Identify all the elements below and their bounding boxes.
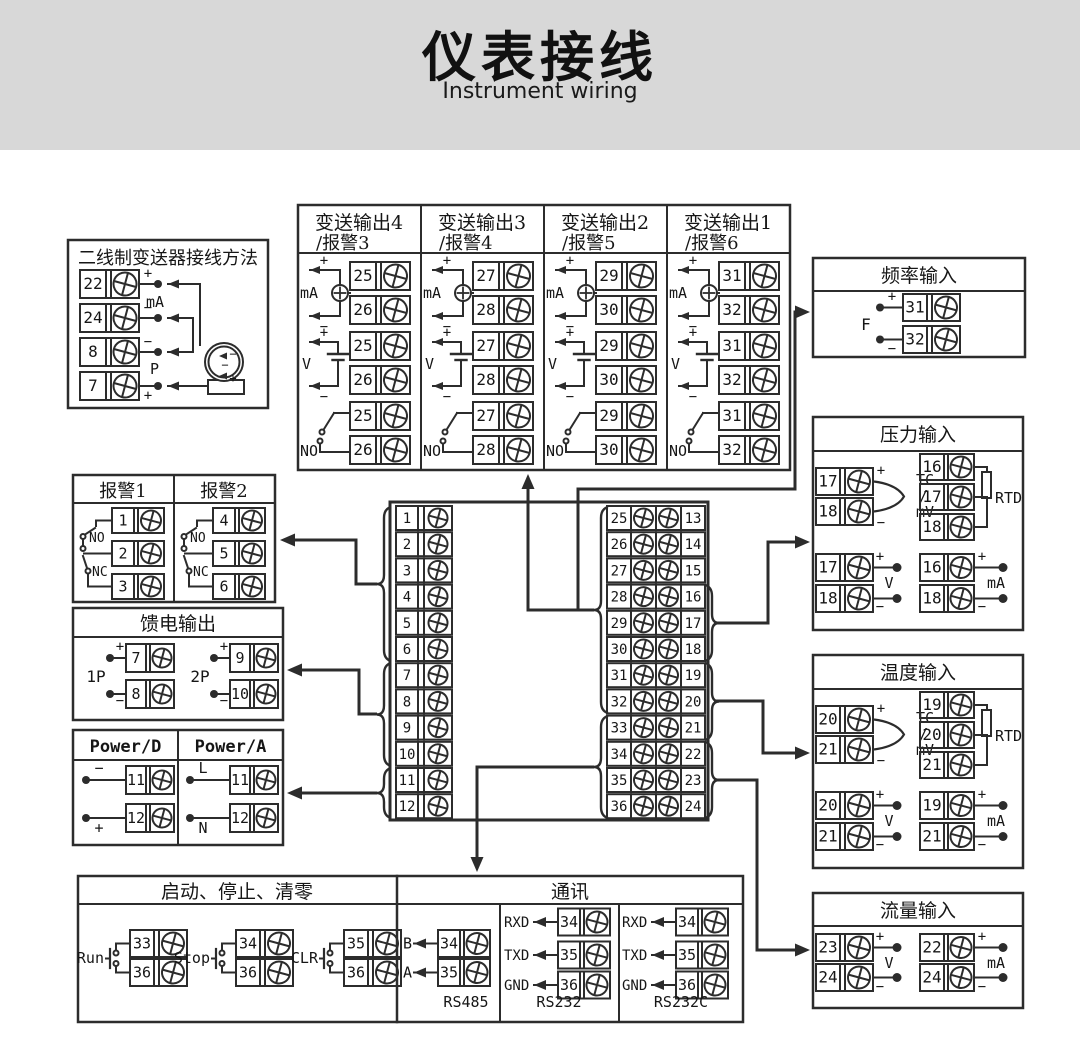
terminal-number: 32 xyxy=(722,440,741,459)
screw-terminal-icon xyxy=(632,742,655,765)
screw-terminal-icon xyxy=(933,326,960,353)
terminal-31: 31 xyxy=(719,262,779,290)
terminal-32: 32 xyxy=(903,326,960,353)
terminal-number: 16 xyxy=(922,457,941,476)
label: NC xyxy=(193,565,209,580)
terminal-35: 35 xyxy=(344,930,401,957)
terminal-5: 5 xyxy=(213,541,265,566)
screw-terminal-icon xyxy=(750,366,778,394)
connection-dot xyxy=(893,832,902,841)
terminal-number: 8 xyxy=(88,342,98,361)
terminal-number: 30 xyxy=(611,642,628,658)
label: + xyxy=(877,701,885,717)
screw-terminal-icon xyxy=(150,806,173,829)
power-column: Power/A1112LN xyxy=(186,737,278,837)
terminal-number: 36 xyxy=(133,964,151,982)
terminal-number: 29 xyxy=(599,406,618,425)
terminal-4: 4 xyxy=(396,585,452,609)
label: NO xyxy=(89,531,105,546)
pushbutton-group: 3536CLR xyxy=(291,930,401,986)
box-title: 温度输入 xyxy=(880,662,956,684)
screw-terminal-icon xyxy=(657,716,680,739)
terminal-pair-25-13: 2513 xyxy=(607,506,705,530)
box-title: 二线制变送器接线方法 xyxy=(78,248,258,269)
comm-section-RS485: 34B35ARS485 xyxy=(403,930,490,1011)
screw-terminal-icon xyxy=(426,611,449,634)
terminal-31: 31 xyxy=(719,402,779,430)
terminal-number: 32 xyxy=(611,694,628,710)
terminal-number: 6 xyxy=(219,578,228,596)
terminal-24: 24 xyxy=(816,964,873,991)
label: + xyxy=(443,325,451,341)
terminal-pair-35-23: 3523 xyxy=(607,768,705,792)
terminal-number: 30 xyxy=(599,370,618,389)
label: − xyxy=(877,515,885,531)
screw-terminal-icon xyxy=(632,716,655,739)
resistor-icon xyxy=(982,710,991,736)
box-pressure-input: 压力输入1718+−TC/mV161718RTD1718+V−1618+mA− xyxy=(813,417,1023,630)
screw-terminal-icon xyxy=(381,402,409,430)
terminal-number: 18 xyxy=(818,589,837,608)
comm-section-RS232: 34RXD35TXD36GNDRS232 xyxy=(504,909,610,1012)
terminal-20: 20 xyxy=(816,792,873,819)
screw-terminal-icon xyxy=(150,682,173,705)
terminal-number: 25 xyxy=(353,336,372,355)
terminal-11: 11 xyxy=(396,768,452,792)
terminal-pair-34-22: 3422 xyxy=(607,742,705,766)
arrowhead-icon xyxy=(522,474,535,489)
screw-terminal-icon xyxy=(657,768,680,791)
screw-terminal-icon xyxy=(846,585,873,612)
connection-dot xyxy=(154,280,162,288)
terminal-2: 2 xyxy=(112,541,164,566)
terminal-number: 24 xyxy=(685,799,702,815)
connection-dot xyxy=(999,943,1008,952)
terminal-19: 19 xyxy=(920,792,974,819)
box-title: Power/D xyxy=(90,737,162,757)
label: − xyxy=(876,837,884,853)
terminal-22: 22 xyxy=(920,934,974,961)
screw-terminal-icon xyxy=(139,508,163,532)
screw-terminal-icon xyxy=(426,506,449,529)
screw-terminal-icon xyxy=(464,960,490,986)
terminal-number: 18 xyxy=(922,589,941,608)
label: NO xyxy=(423,442,441,460)
box-flow-input: 流量输入2324+V−2224+mA− xyxy=(813,893,1023,1008)
terminal-31: 31 xyxy=(903,294,960,321)
screw-terminal-icon xyxy=(381,262,409,290)
screw-terminal-icon xyxy=(464,931,490,957)
label: + xyxy=(144,388,152,404)
terminal-number: 1 xyxy=(403,511,411,527)
terminal-21: 21 xyxy=(816,736,873,763)
label: − xyxy=(116,693,124,709)
terminal-number: 13 xyxy=(685,511,702,527)
label: RXD xyxy=(622,915,647,931)
terminal-7: 7 xyxy=(126,644,174,672)
terminal-number: 2 xyxy=(118,545,127,563)
box-title: /报警4 xyxy=(439,233,493,254)
terminal-number: 14 xyxy=(685,537,702,553)
screw-terminal-icon xyxy=(627,436,655,464)
screw-terminal-icon xyxy=(254,682,277,705)
terminal-number: 4 xyxy=(219,512,228,530)
terminal-number: 18 xyxy=(685,642,702,658)
terminal-number: 17 xyxy=(685,616,702,632)
terminal-number: 12 xyxy=(127,809,145,827)
terminal-4: 4 xyxy=(213,508,265,533)
terminal-29: 29 xyxy=(596,332,656,360)
terminal-number: 31 xyxy=(722,336,741,355)
terminal-number: 17 xyxy=(818,558,837,577)
arrowhead-icon xyxy=(795,944,810,957)
arrowhead-icon xyxy=(168,348,179,357)
terminal-number: 34 xyxy=(678,913,696,931)
terminal-number: 11 xyxy=(127,771,145,789)
screw-terminal-icon xyxy=(657,585,680,608)
label: + xyxy=(220,639,228,655)
terminal-number: 26 xyxy=(353,300,372,319)
arrowhead-icon xyxy=(679,382,689,390)
arrowhead-icon xyxy=(556,312,566,320)
terminal-number: 21 xyxy=(818,740,837,759)
current-source-icon xyxy=(701,285,717,301)
label: mA xyxy=(987,812,1005,830)
screw-terminal-icon xyxy=(584,972,610,998)
arrowhead-icon xyxy=(433,312,443,320)
terminal-number: 26 xyxy=(611,537,628,553)
screw-terminal-icon xyxy=(254,768,277,791)
terminal-number: 10 xyxy=(231,685,249,703)
screw-terminal-icon xyxy=(504,332,532,360)
label: V xyxy=(884,954,893,972)
terminal-number: 17 xyxy=(922,487,941,506)
terminal-number: 25 xyxy=(353,406,372,425)
terminal-number: 20 xyxy=(818,796,837,815)
terminal-number: 33 xyxy=(133,935,151,953)
screw-terminal-icon xyxy=(702,942,728,968)
connection-dot xyxy=(999,832,1008,841)
screw-terminal-icon xyxy=(426,795,449,818)
terminal-number: 16 xyxy=(922,558,941,577)
screw-terminal-icon xyxy=(846,706,873,733)
screw-terminal-icon xyxy=(657,611,680,634)
screw-terminal-icon xyxy=(948,692,974,718)
screw-terminal-icon xyxy=(948,965,974,991)
terminal-number: 35 xyxy=(440,964,458,982)
terminal-number: 28 xyxy=(476,300,495,319)
screw-terminal-icon xyxy=(948,935,974,961)
box-frequency-input: 频率输入3132+−F xyxy=(813,258,1025,357)
box-title: 变送输出1 xyxy=(684,212,772,234)
terminal-21: 21 xyxy=(816,823,873,850)
label: − xyxy=(221,358,228,372)
label: + xyxy=(876,787,884,803)
terminal-7: 7 xyxy=(396,663,452,687)
label: A xyxy=(403,964,412,982)
terminal-number: 22 xyxy=(685,747,702,763)
label: NO xyxy=(669,442,687,460)
screw-terminal-icon xyxy=(627,402,655,430)
box-title: 报警2 xyxy=(200,481,247,502)
terminal-23: 23 xyxy=(816,934,873,961)
terminal-29: 29 xyxy=(596,402,656,430)
terminal-number: 6 xyxy=(403,642,411,658)
screw-terminal-icon xyxy=(948,484,974,510)
transmit-column: 变送输出3/报警42728+−mA2728+−V2728NO xyxy=(423,212,533,464)
terminal-number: 19 xyxy=(685,668,702,684)
label: P xyxy=(150,360,159,378)
screw-terminal-icon xyxy=(933,294,960,321)
terminal-8: 8 xyxy=(80,338,139,366)
terminal-29: 29 xyxy=(596,262,656,290)
label: mA xyxy=(546,284,564,302)
terminal-9: 9 xyxy=(396,716,452,740)
screw-terminal-icon xyxy=(632,768,655,791)
box-power: Power/D1112−+Power/A1112LN xyxy=(73,730,283,845)
box-two-wire-transmitter: 二线制变送器接线方法222487+−−+mAP−−+ xyxy=(68,240,268,408)
screw-terminal-icon xyxy=(426,637,449,660)
feed-group: 2P910+− xyxy=(190,639,278,709)
label: RXD xyxy=(504,915,529,931)
terminal-32: 32 xyxy=(719,366,779,394)
screw-terminal-icon xyxy=(657,690,680,713)
label: CLR xyxy=(291,949,319,967)
box-title: 报警1 xyxy=(99,481,146,502)
screw-terminal-icon xyxy=(632,664,655,687)
label: − xyxy=(876,599,884,615)
arrowhead-icon xyxy=(310,382,320,390)
terminal-24: 24 xyxy=(80,304,139,332)
terminal-pair-36-24: 3624 xyxy=(607,794,705,818)
screw-terminal-icon xyxy=(948,454,974,480)
screw-terminal-icon xyxy=(266,959,293,986)
terminal-number: 18 xyxy=(922,517,941,536)
pushbutton-group: 3336Run xyxy=(77,930,187,986)
label: + xyxy=(689,325,697,341)
label: + xyxy=(229,371,236,385)
screw-terminal-icon xyxy=(150,768,173,791)
connection-dot xyxy=(893,594,902,603)
terminal-number: 23 xyxy=(685,773,702,789)
terminal-25: 25 xyxy=(350,402,410,430)
terminal-number: 34 xyxy=(440,935,458,953)
terminal-number: 8 xyxy=(131,685,140,703)
terminal-number: 35 xyxy=(347,935,365,953)
screw-terminal-icon xyxy=(504,262,532,290)
screw-terminal-icon xyxy=(657,533,680,556)
screw-terminal-icon xyxy=(426,768,449,791)
terminal-34: 34 xyxy=(558,909,610,936)
terminal-25: 25 xyxy=(350,262,410,290)
label: NC xyxy=(92,565,108,580)
screw-terminal-icon xyxy=(702,909,728,935)
screw-terminal-icon xyxy=(627,296,655,324)
screw-terminal-icon xyxy=(846,964,873,991)
screw-terminal-icon xyxy=(426,664,449,687)
terminal-30: 30 xyxy=(596,296,656,324)
screw-terminal-icon xyxy=(948,555,974,581)
terminal-number: 22 xyxy=(922,938,941,957)
terminal-27: 27 xyxy=(473,332,533,360)
terminal-number: 7 xyxy=(131,649,140,667)
terminal-18: 18 xyxy=(816,585,873,612)
terminal-26: 26 xyxy=(350,436,410,464)
terminal-1: 1 xyxy=(396,506,452,530)
connection-dot xyxy=(999,973,1008,982)
screw-terminal-icon xyxy=(504,366,532,394)
arrowhead-icon xyxy=(287,787,302,800)
terminal-12: 12 xyxy=(396,794,452,818)
terminal-10: 10 xyxy=(396,742,452,766)
label: GND xyxy=(622,978,647,994)
pushbutton-group: 3436Stop xyxy=(174,930,293,986)
terminal-31: 31 xyxy=(719,332,779,360)
comm-standard-label: RS485 xyxy=(443,993,488,1011)
box-feed-output: 馈电输出1P78+−2P910+− xyxy=(73,608,283,720)
label: B xyxy=(403,935,412,953)
label: NO xyxy=(546,442,564,460)
label: + xyxy=(978,929,986,945)
terminal-number: 20 xyxy=(922,725,941,744)
terminal-number: 29 xyxy=(599,266,618,285)
label: − xyxy=(566,389,574,405)
terminal-number: 5 xyxy=(403,616,411,632)
label: + xyxy=(978,549,986,565)
terminal-number: 5 xyxy=(219,545,228,563)
terminal-number: 32 xyxy=(722,300,741,319)
label: mA xyxy=(146,293,164,311)
label: − xyxy=(443,389,451,405)
alarm-column: 报警1123NONC xyxy=(81,481,165,599)
label: V xyxy=(425,355,434,373)
terminal-18: 18 xyxy=(920,585,974,612)
terminal-34: 34 xyxy=(236,930,293,957)
terminal-number: 29 xyxy=(599,336,618,355)
label: + xyxy=(876,929,884,945)
label: V xyxy=(671,355,680,373)
label: − xyxy=(689,389,697,405)
terminal-32: 32 xyxy=(719,296,779,324)
label: + xyxy=(877,463,885,479)
label: NO xyxy=(300,442,318,460)
terminal-number: 29 xyxy=(611,616,628,632)
terminal-17: 17 xyxy=(816,468,873,495)
terminal-number: 12 xyxy=(231,809,249,827)
terminal-number: 28 xyxy=(476,440,495,459)
label: − xyxy=(888,341,896,357)
terminal-6: 6 xyxy=(213,574,265,599)
terminal-pair-28-16: 2816 xyxy=(607,585,705,609)
screw-terminal-icon xyxy=(111,304,139,332)
screw-terminal-icon xyxy=(750,402,778,430)
terminal-21: 21 xyxy=(920,823,974,850)
terminal-number: 31 xyxy=(722,266,741,285)
label: NO xyxy=(190,531,206,546)
screw-terminal-icon xyxy=(750,262,778,290)
main-terminal-block: 1234567891011122513261427152816291730183… xyxy=(377,502,719,820)
terminal-number: 7 xyxy=(88,376,98,395)
screw-terminal-icon xyxy=(846,792,873,819)
terminal-number: 17 xyxy=(818,472,837,491)
screw-terminal-icon xyxy=(111,338,139,366)
terminal-number: 12 xyxy=(399,799,416,815)
arrowhead-icon xyxy=(679,312,689,320)
arrowhead-icon xyxy=(795,536,810,549)
screw-terminal-icon xyxy=(111,270,139,298)
screw-terminal-icon xyxy=(381,332,409,360)
feed-group: 1P78+− xyxy=(86,639,174,709)
label: + xyxy=(566,325,574,341)
connection-dot xyxy=(154,382,162,390)
screw-terminal-icon xyxy=(627,262,655,290)
terminal-12: 12 xyxy=(126,804,174,832)
label: + xyxy=(144,266,152,282)
screw-terminal-icon xyxy=(632,506,655,529)
screw-terminal-icon xyxy=(240,541,264,565)
terminal-21: 21 xyxy=(920,752,974,778)
label: RTD xyxy=(995,489,1022,507)
terminal-35: 35 xyxy=(676,942,728,969)
box-title: 馈电输出 xyxy=(140,613,216,635)
terminal-number: 27 xyxy=(611,563,628,579)
terminal-36: 36 xyxy=(344,959,401,986)
screw-terminal-icon xyxy=(846,468,873,495)
terminal-number: 34 xyxy=(239,935,257,953)
label: − xyxy=(978,599,986,615)
terminal-35: 35 xyxy=(438,959,490,986)
terminal-34: 34 xyxy=(676,909,728,936)
screw-terminal-icon xyxy=(627,332,655,360)
screw-terminal-icon xyxy=(632,611,655,634)
label: 2P xyxy=(190,667,209,686)
terminal-8: 8 xyxy=(126,680,174,708)
comm-standard-label: RS232C xyxy=(654,993,708,1011)
arrowhead-icon xyxy=(795,747,810,760)
box-title: 变送输出4 xyxy=(315,212,403,234)
label: − xyxy=(144,334,152,350)
screw-terminal-icon xyxy=(846,498,873,525)
screw-terminal-icon xyxy=(657,506,680,529)
screw-terminal-icon xyxy=(632,795,655,818)
label: Stop xyxy=(174,949,210,967)
screw-terminal-icon xyxy=(150,646,173,669)
comm-standard-label: RS232 xyxy=(536,993,581,1011)
terminal-26: 26 xyxy=(350,366,410,394)
terminal-number: 24 xyxy=(818,968,837,987)
terminal-number: 28 xyxy=(611,590,628,606)
connection-dot xyxy=(893,801,902,810)
label: RTD xyxy=(995,727,1022,745)
screw-terminal-icon xyxy=(632,533,655,556)
terminal-pair-30-18: 3018 xyxy=(607,637,705,661)
terminal-11: 11 xyxy=(126,766,174,794)
terminal-11: 11 xyxy=(230,766,278,794)
terminal-number: 21 xyxy=(685,721,702,737)
label: + xyxy=(116,639,124,655)
resistor-icon xyxy=(982,472,991,498)
terminal-number: 25 xyxy=(611,511,628,527)
box-title: 压力输入 xyxy=(880,424,956,446)
screw-terminal-icon xyxy=(948,586,974,612)
screw-terminal-icon xyxy=(657,637,680,660)
terminal-number: 11 xyxy=(231,771,249,789)
label: mA xyxy=(987,954,1005,972)
terminal-9: 9 xyxy=(230,644,278,672)
instrument-wiring-page: 仪表接线 Instrument wiring 二线制变送器接线方法222487+… xyxy=(0,0,1080,1040)
box-title: /报警5 xyxy=(562,233,616,254)
label: + xyxy=(320,325,328,341)
